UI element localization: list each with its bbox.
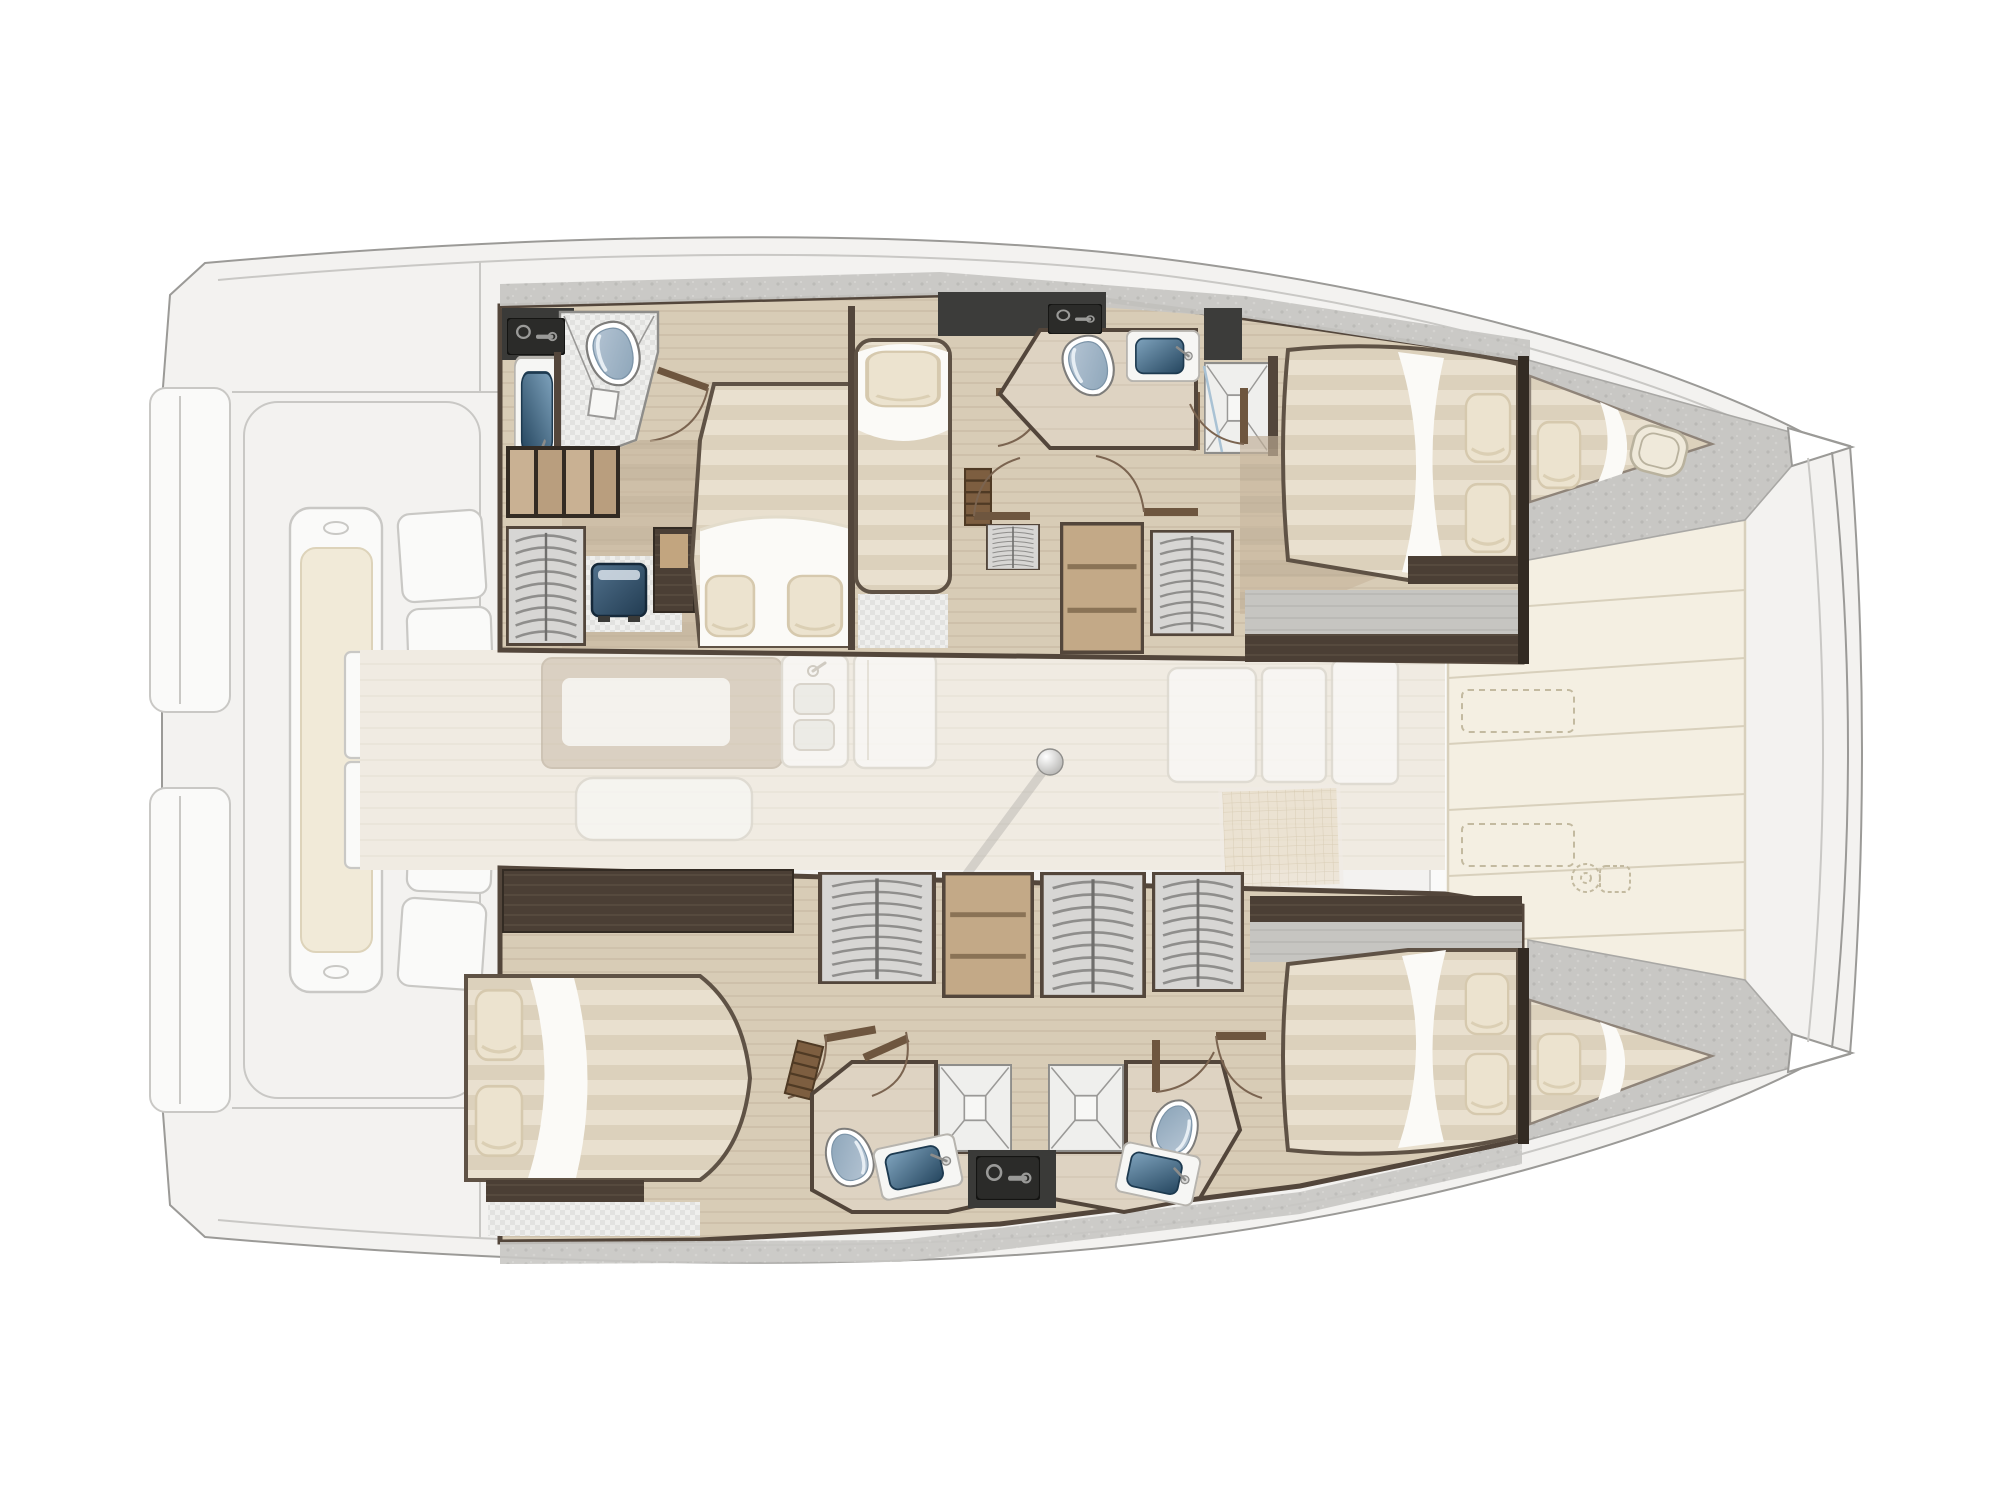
- dark-strip: [1245, 634, 1527, 662]
- foot-shelf-dark: [486, 1180, 644, 1202]
- forward-bed: [1283, 950, 1518, 1154]
- drawer-unit-icon: [1060, 522, 1144, 654]
- dark-strip: [1250, 896, 1522, 922]
- pillow-icon: [1466, 484, 1510, 552]
- pillow-icon: [1538, 1034, 1580, 1094]
- nightstand-top: [660, 534, 688, 568]
- pillow-icon: [1538, 422, 1580, 488]
- galley-sink-ghost: [782, 655, 848, 767]
- pillow-icon: [788, 576, 841, 636]
- pillow-icon: [476, 1086, 522, 1156]
- galley-fridge-ghost: [854, 652, 936, 768]
- wardrobe-locker-icon: [506, 526, 586, 646]
- vanity-black-counter: [1048, 304, 1102, 334]
- transom-platform-port: [150, 388, 230, 712]
- salon-bench-ghost: [576, 778, 752, 840]
- gray-step: [1245, 590, 1521, 634]
- washbasin-unit: [1127, 331, 1199, 381]
- pillow-icon: [1466, 1054, 1508, 1114]
- tile-base: [858, 594, 948, 648]
- pillow-icon: [706, 576, 754, 636]
- pillow-icon: [1466, 974, 1508, 1034]
- pillow-icon: [476, 990, 522, 1060]
- owner-bed: [692, 384, 852, 646]
- drawer-slats: [506, 446, 620, 518]
- starboard-forward-cabin: [1283, 950, 1518, 1154]
- vanity-black-counter: [976, 1156, 1040, 1200]
- wardrobe-locker-icon: [1152, 872, 1244, 992]
- salon-table-top: [562, 678, 730, 746]
- forepeak-bulkhead: [1518, 948, 1529, 1144]
- pillow-icon: [867, 352, 939, 406]
- charcoal-block: [1204, 308, 1242, 360]
- transom-platform-starboard: [150, 788, 230, 1112]
- wall-divider: [848, 306, 855, 650]
- forepeak-bulkhead: [1518, 356, 1529, 664]
- single-berth: [856, 340, 950, 592]
- tile-base: [488, 1202, 700, 1236]
- mast-post: [1037, 749, 1063, 775]
- wardrobe-locker-icon: [1150, 530, 1234, 636]
- wardrobe-locker-icon: [1040, 872, 1146, 998]
- vanity-black-counter: [507, 318, 565, 355]
- shower-drain: [588, 388, 618, 418]
- wardrobe-row: [818, 872, 1244, 998]
- tv-unit: [592, 564, 646, 622]
- wardrobe-locker-icon: [818, 872, 936, 984]
- catamaran-floor-plan: [0, 0, 2000, 1500]
- galley-counter-ghost: [1168, 668, 1256, 782]
- galley-unit-ghost: [1332, 660, 1398, 784]
- drawer-unit-icon: [942, 872, 1034, 998]
- wardrobe-locker-icon: [986, 524, 1040, 570]
- footboard: [1408, 556, 1518, 584]
- pillow-icon: [1466, 394, 1510, 462]
- aft-bed: [466, 976, 750, 1180]
- forward-bed: [1283, 346, 1518, 584]
- sideboard-dark: [503, 870, 793, 932]
- shower-stall: [1049, 1065, 1123, 1151]
- floor-plan-canvas: [0, 0, 2000, 1500]
- galley-counter-ghost: [1262, 668, 1326, 782]
